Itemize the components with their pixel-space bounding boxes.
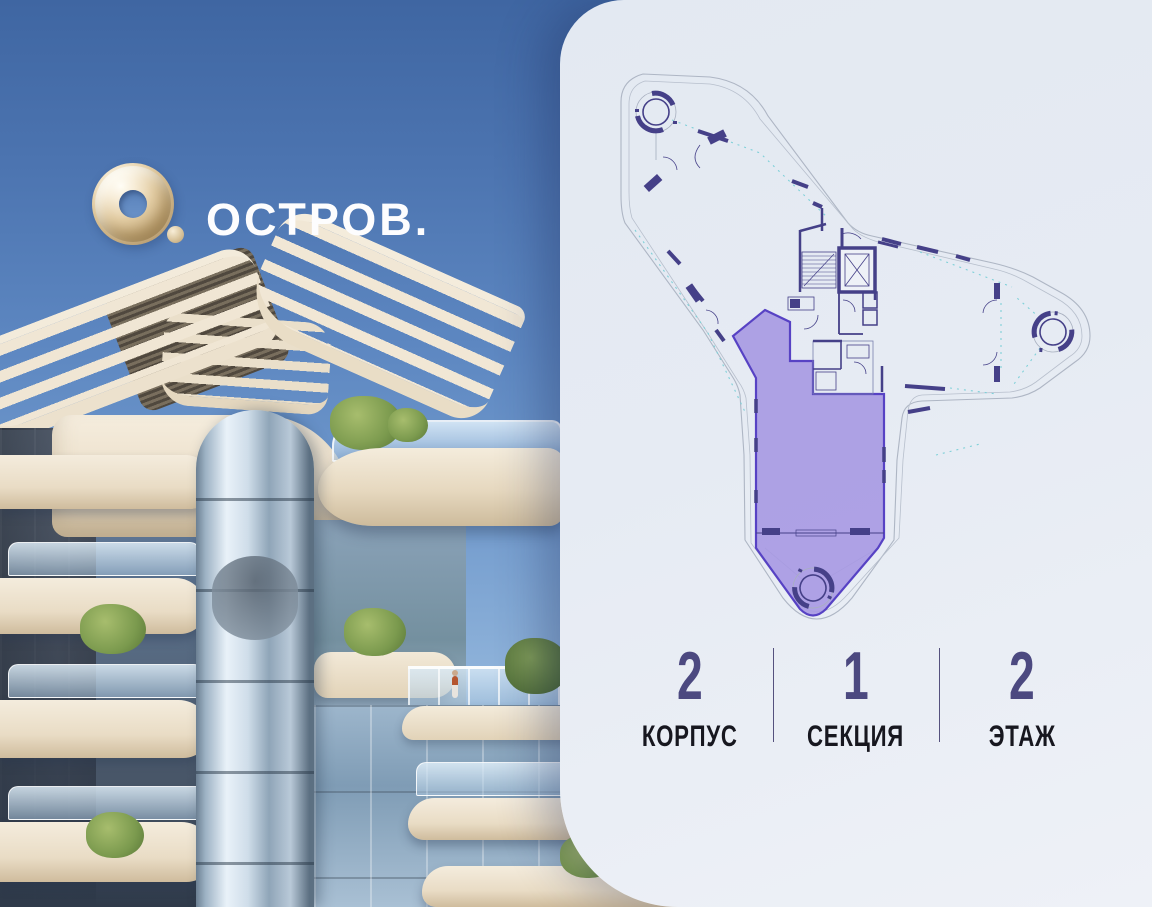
stat-korpus: 2 КОРПУС <box>608 642 773 752</box>
balcony-slab <box>0 700 210 758</box>
stat-etazh: 2 ЭТАЖ <box>940 642 1105 752</box>
turret-balcony-right <box>1031 309 1075 354</box>
turret-balcony-top-left <box>635 92 677 132</box>
glass-elevator-cylinder <box>196 410 314 907</box>
floorplan-panel: 2 КОРПУС 1 СЕКЦИЯ 2 ЭТАЖ <box>560 0 1152 907</box>
unit-stats: 2 КОРПУС 1 СЕКЦИЯ 2 ЭТАЖ <box>560 642 1152 752</box>
floor-plan <box>560 0 1152 660</box>
sektsiya-value: 1 <box>843 642 869 710</box>
person-on-terrace <box>452 676 458 698</box>
elevator-shaft <box>839 248 875 292</box>
balcony-plant <box>388 408 428 442</box>
etazh-value: 2 <box>1009 642 1035 710</box>
brand-wordmark: ОСТРОВ. <box>206 194 430 246</box>
balcony-plant <box>86 812 144 858</box>
elevator-cab <box>212 556 298 640</box>
gold-dot-icon <box>167 226 184 243</box>
etazh-label: ЭТАЖ <box>988 722 1055 752</box>
balcony-plant <box>344 608 406 656</box>
korpus-label: КОРПУС <box>642 722 738 752</box>
korpus-value: 2 <box>677 642 703 710</box>
stat-sektsiya: 1 СЕКЦИЯ <box>774 642 939 752</box>
glass-railing <box>8 542 200 576</box>
gold-torus-icon <box>92 163 174 245</box>
balcony-slab <box>0 455 214 509</box>
wall-piers <box>644 129 1000 382</box>
perimeter-wall-dashes <box>668 131 970 412</box>
curved-balcony-slab <box>318 448 564 526</box>
balcony-plant <box>80 604 146 654</box>
glass-railing <box>8 664 204 698</box>
sektsiya-label: СЕКЦИЯ <box>808 722 905 752</box>
highlighted-apartment[interactable] <box>733 310 884 616</box>
